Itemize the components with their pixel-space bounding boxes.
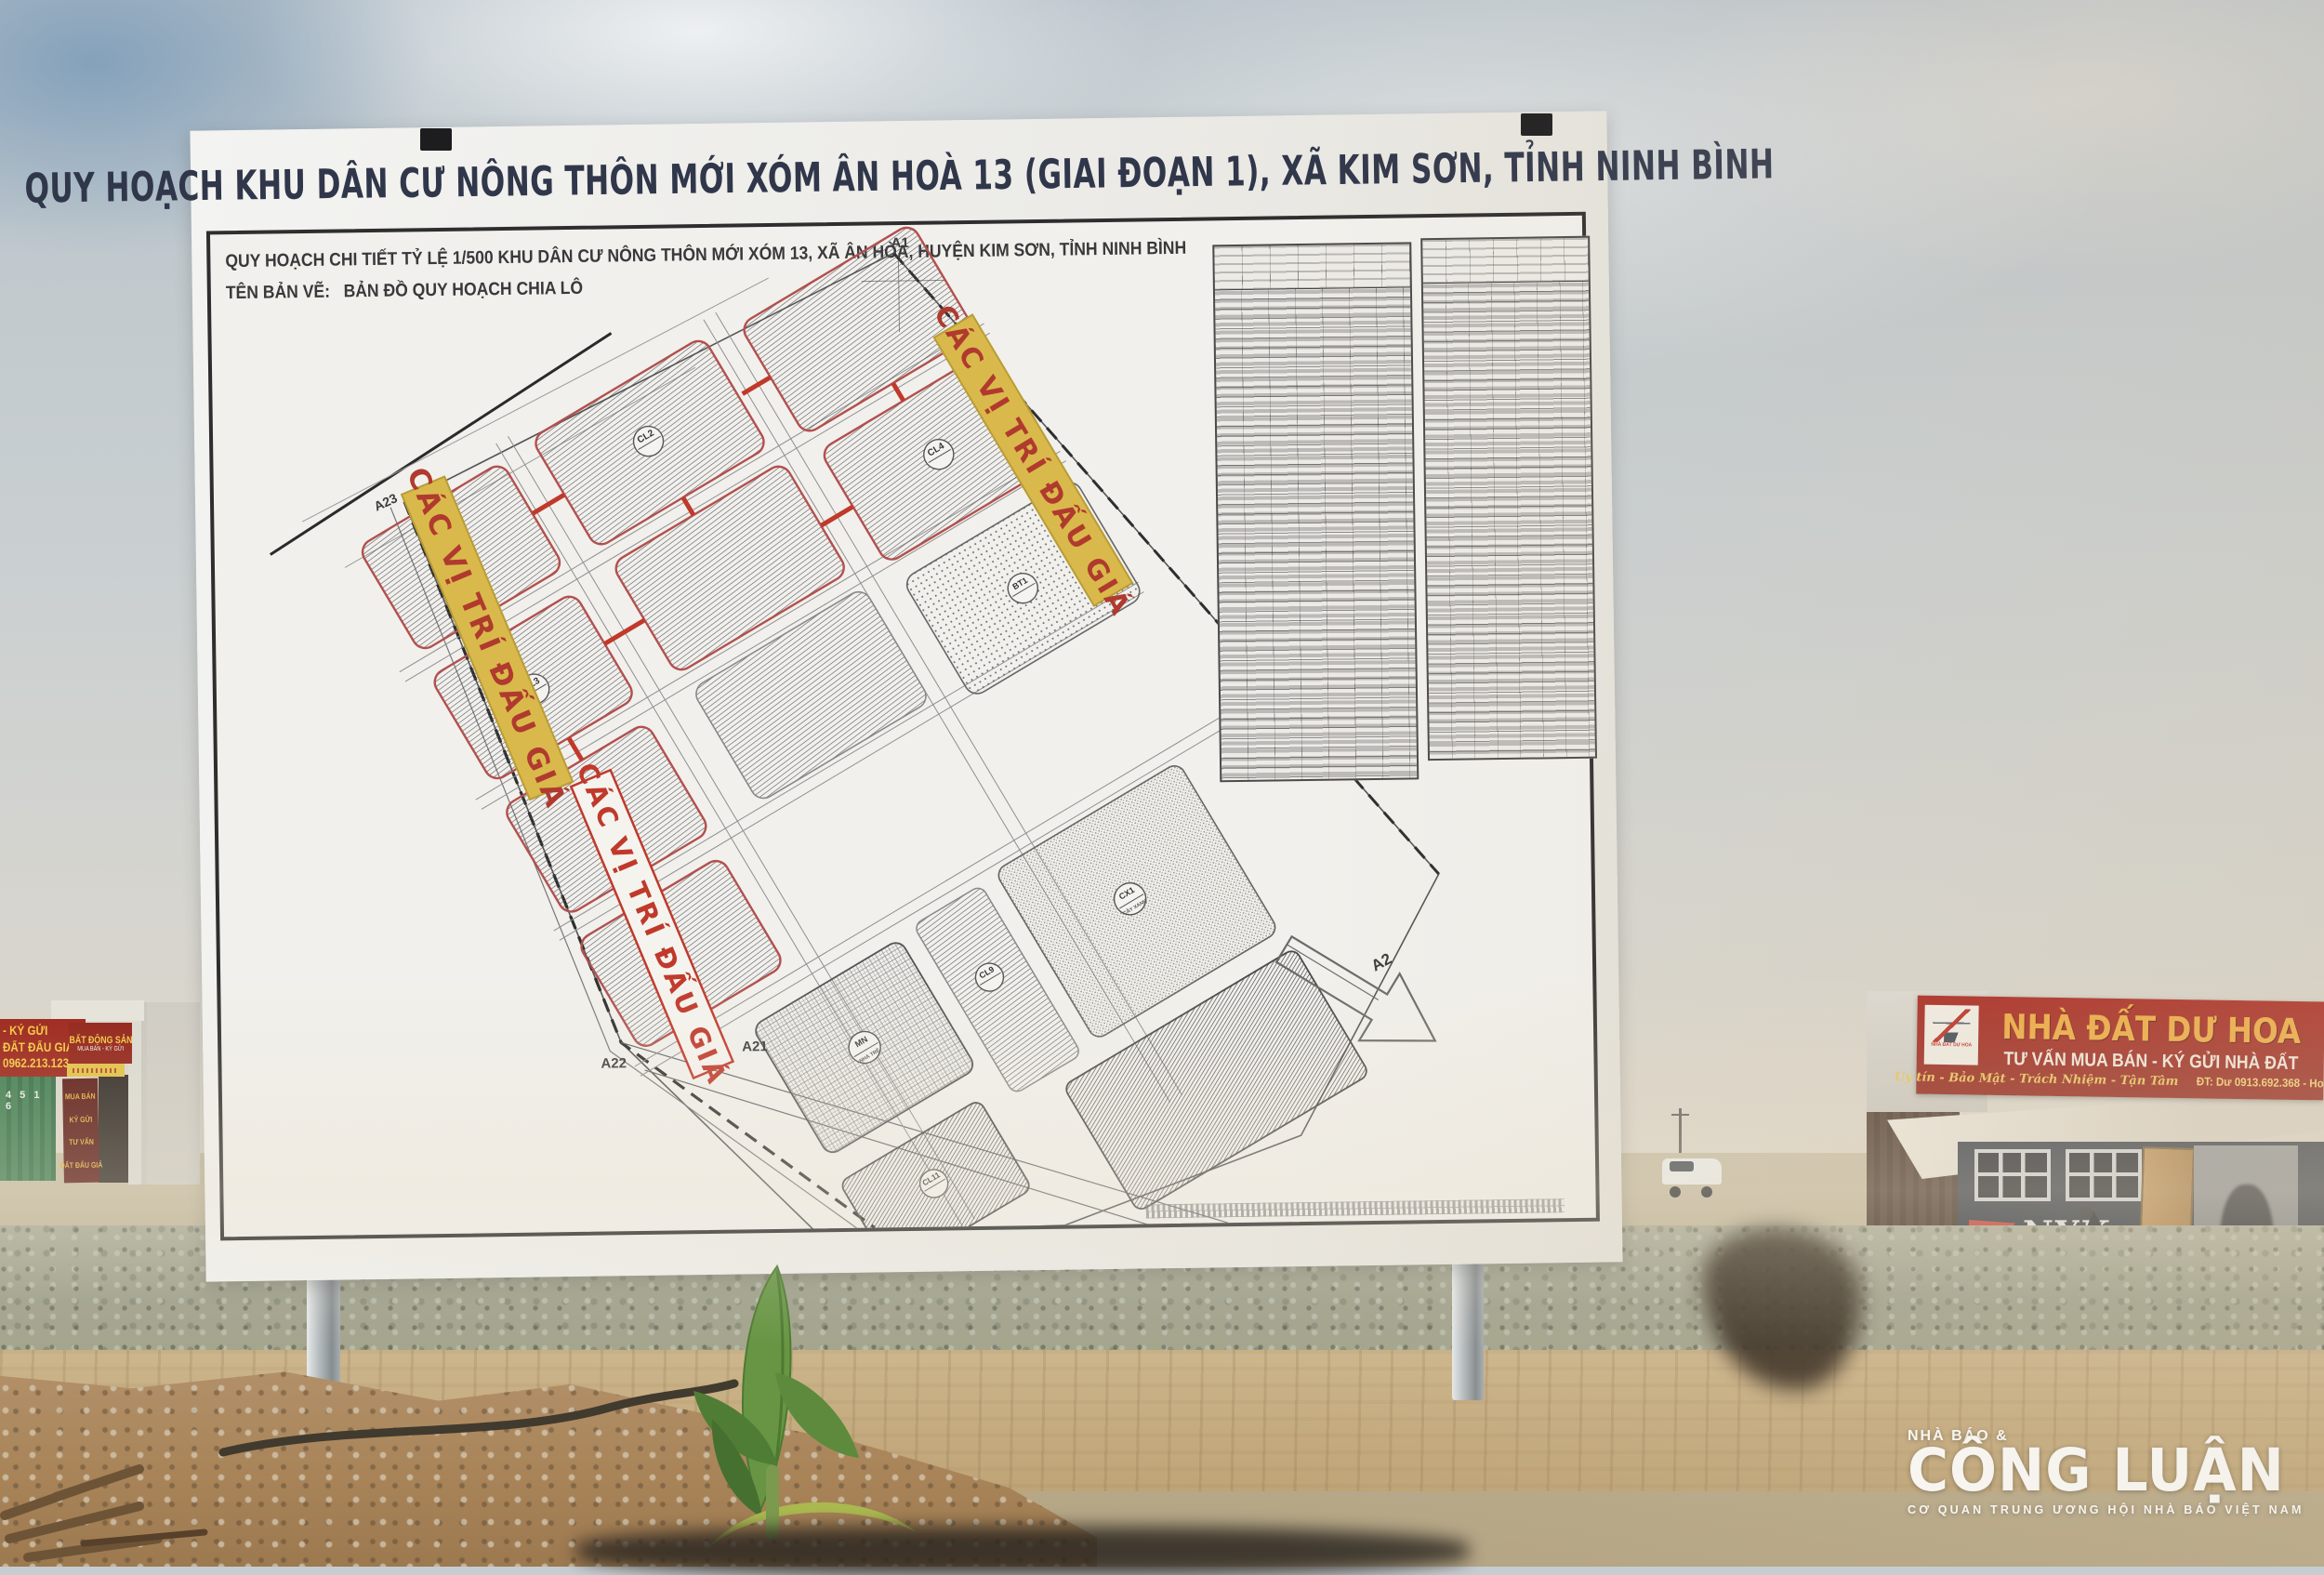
table-header bbox=[1422, 238, 1589, 284]
out-of-focus-strip bbox=[576, 1527, 1469, 1575]
shop-sign-slogan: Uy tín - Bảo Mật - Trách Nhiệm - Tận Tâm bbox=[1895, 1070, 2179, 1089]
container-marking: 4 5 1 6 bbox=[6, 1090, 56, 1112]
watermark-main: CÔNG LUẬN bbox=[1908, 1444, 2307, 1500]
billboard-post-right bbox=[1452, 1261, 1484, 1400]
shop-sign-phone: ĐT: Dư 0913.692.368 - Hoa 0973.692.256 bbox=[2197, 1075, 2324, 1091]
table-header bbox=[1214, 244, 1410, 290]
svg-text:A21: A21 bbox=[742, 1039, 768, 1054]
billboard-clip bbox=[1521, 113, 1552, 136]
banner-word: MUA BÁN bbox=[65, 1092, 96, 1102]
svg-text:A22: A22 bbox=[601, 1055, 627, 1071]
left-sign-line: ĐẤT ĐẤU GIÁ bbox=[3, 1040, 72, 1056]
shop-sign: NHÀ ĐẤT DƯ HOA NHÀ ĐẤT DƯ HOA TƯ VẤN MUA… bbox=[1916, 996, 2324, 1101]
debris-sticks bbox=[0, 1450, 307, 1567]
billboard-clip bbox=[420, 128, 452, 151]
barred-window bbox=[2066, 1149, 2142, 1201]
planning-billboard: QUY HOẠCH KHU DÂN CƯ NÔNG THÔN MỚI XÓM Â… bbox=[190, 111, 1622, 1281]
banana-plant bbox=[638, 1261, 982, 1568]
statistics-table-right bbox=[1420, 236, 1597, 761]
map-sheet-frame: QUY HOẠCH CHI TIẾT TỶ LỆ 1/500 KHU DÂN C… bbox=[206, 212, 1600, 1241]
left-shack-doorway bbox=[99, 1075, 128, 1183]
banner-word: ĐẤT ĐẤU GIÁ bbox=[60, 1159, 103, 1170]
svg-text:A23: A23 bbox=[372, 490, 400, 513]
statistics-table-left bbox=[1212, 242, 1419, 782]
left-shack-roof bbox=[51, 1000, 144, 1021]
shop-logo-caption: NHÀ ĐẤT DƯ HOA bbox=[1931, 1042, 1972, 1049]
banner-word: KÝ GỬI bbox=[69, 1115, 92, 1124]
shop-sign-services: TƯ VẤN MUA BÁN - KÝ GỬI NHÀ ĐẤT bbox=[2003, 1049, 2298, 1075]
banana-leaf bbox=[775, 1372, 859, 1458]
billboard-title: QUY HOẠCH KHU DÂN CƯ NÔNG THÔN MỚI XÓM Â… bbox=[191, 133, 1608, 219]
shop-logo: NHÀ ĐẤT DƯ HOA bbox=[1924, 1005, 1979, 1065]
barred-window bbox=[1974, 1149, 2051, 1201]
left-shack-wall bbox=[128, 1002, 200, 1185]
left-sign-phone: 0962.213.123 bbox=[3, 1056, 72, 1072]
watermark-sub: CƠ QUAN TRUNG ƯƠNG HỘI NHÀ BÁO VIỆT NAM bbox=[1908, 1503, 2307, 1516]
table-rows bbox=[1423, 281, 1595, 759]
left-sign-yellow-band bbox=[67, 1064, 125, 1077]
left-small-sign: BẤT ĐỘNG SẢN MUA BÁN - KÝ GỬI bbox=[69, 1023, 132, 1064]
left-small-sign-sub: MUA BÁN - KÝ GỬI bbox=[77, 1046, 124, 1052]
svg-text:A1: A1 bbox=[891, 235, 908, 251]
building-logo-icon bbox=[1933, 1009, 1971, 1043]
green-container: 4 5 1 6 bbox=[0, 1077, 56, 1181]
vertical-banner: MUA BÁN KÝ GỬI TƯ VẤN ĐẤT ĐẤU GIÁ bbox=[62, 1079, 99, 1184]
banner-word: TƯ VẤN bbox=[69, 1137, 94, 1146]
left-sign-line: - KÝ GỬI bbox=[3, 1024, 72, 1039]
svg-text:A2: A2 bbox=[1368, 949, 1394, 974]
left-small-sign-title: BẤT ĐỘNG SẢN bbox=[69, 1035, 132, 1046]
table-rows bbox=[1215, 286, 1417, 780]
shop-sign-title: NHÀ ĐẤT DƯ HOA bbox=[2001, 1006, 2302, 1051]
pickup-truck bbox=[1662, 1158, 1722, 1198]
news-watermark: NHÀ BÁO & CÔNG LUẬN CƠ QUAN TRUNG ƯƠNG H… bbox=[1908, 1428, 2307, 1516]
